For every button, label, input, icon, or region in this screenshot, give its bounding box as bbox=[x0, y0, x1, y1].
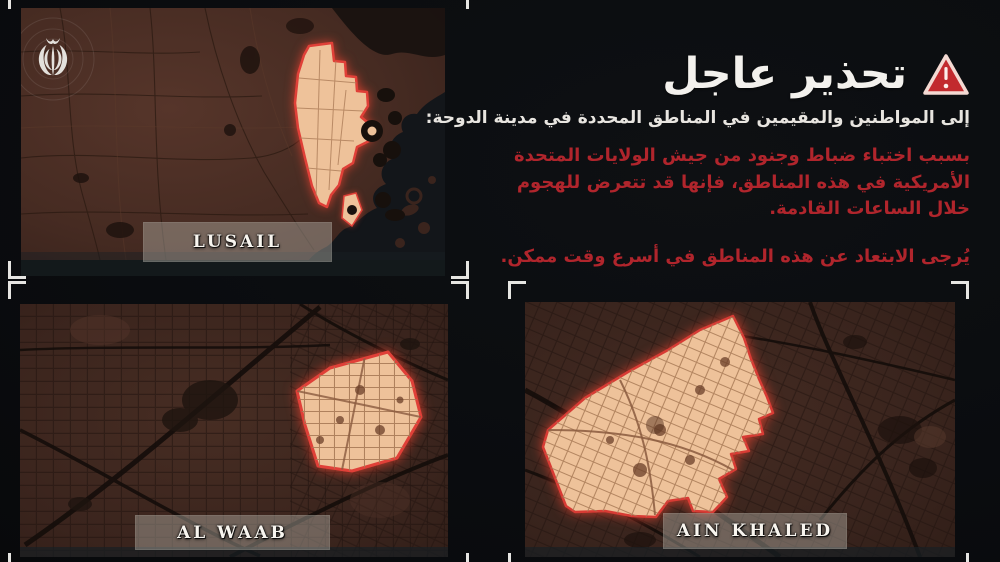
crop-mark-top-left bbox=[508, 281, 526, 299]
crop-mark-bottom-left bbox=[8, 261, 26, 279]
crop-mark-bottom-left bbox=[508, 553, 526, 562]
warning-block: تحذير عاجل إلى المواطنين والمقيمين في ال… bbox=[500, 50, 970, 267]
crop-mark-top-left bbox=[8, 281, 26, 299]
crop-mark-bottom-left bbox=[8, 553, 26, 562]
area-label-text: AIN KHALED bbox=[677, 521, 833, 541]
panel-divider bbox=[21, 260, 445, 276]
warning-triangle-icon bbox=[922, 52, 970, 98]
crop-mark-bottom-right bbox=[451, 261, 469, 279]
area-label-text: AL WAAB bbox=[177, 523, 288, 543]
crop-mark-top-left bbox=[8, 0, 26, 9]
crop-mark-bottom-right bbox=[451, 553, 469, 562]
area-label-text: LUSAIL bbox=[193, 232, 282, 252]
poster-canvas: LUSAIL bbox=[0, 0, 1000, 562]
area-label-lusail: LUSAIL bbox=[143, 222, 332, 262]
warning-advice: يُرجى الابتعاد عن هذه المناطق في أسرع وق… bbox=[500, 246, 970, 267]
crop-mark-top-right bbox=[451, 281, 469, 299]
area-label-alwaab: AL WAAB bbox=[135, 515, 330, 550]
crop-mark-top-right bbox=[951, 281, 969, 299]
crop-mark-bottom-right bbox=[951, 553, 969, 562]
warning-header: تحذير عاجل bbox=[500, 50, 970, 99]
crop-mark-top-right bbox=[451, 0, 469, 9]
warning-title: تحذير عاجل bbox=[662, 50, 907, 99]
area-label-ainkhaled: AIN KHALED bbox=[663, 513, 847, 549]
warning-subtitle: إلى المواطنين والمقيمين في المناطق المحد… bbox=[500, 108, 970, 128]
warning-body: بسبب اختباء ضباط وجنود من جيش الولايات ا… bbox=[500, 143, 970, 221]
